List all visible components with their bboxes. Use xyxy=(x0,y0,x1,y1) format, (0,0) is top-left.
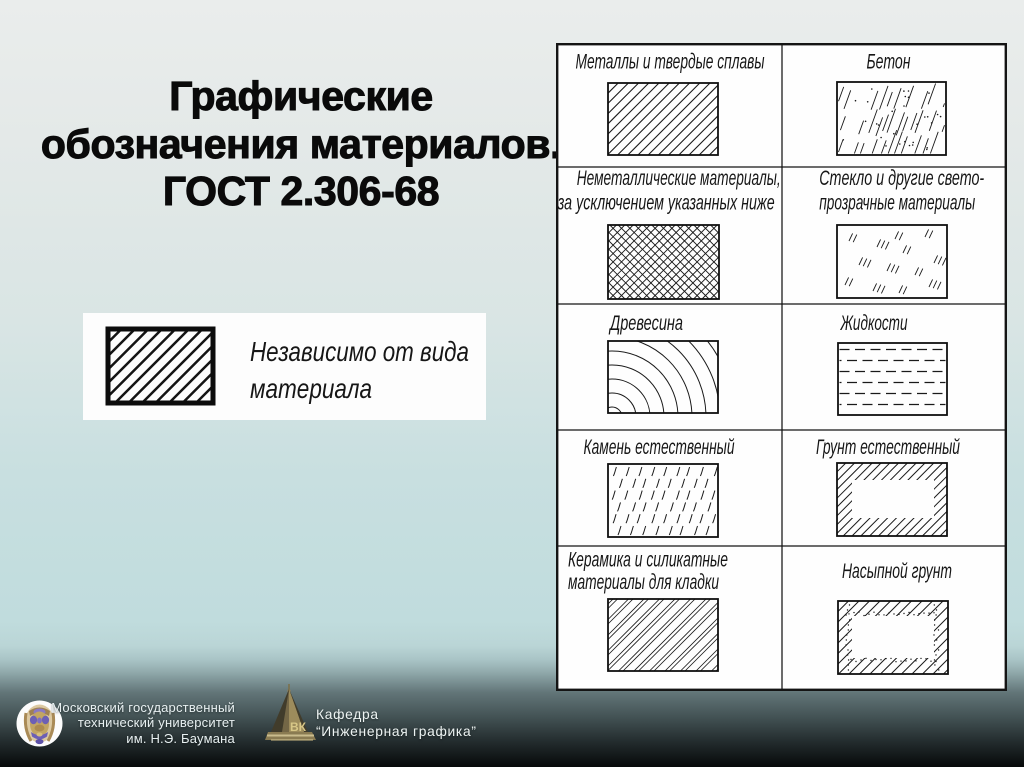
svg-text:ВК: ВК xyxy=(290,720,307,734)
svg-text:Металлы и твердые сплавы: Металлы и твердые сплавы xyxy=(576,51,765,74)
svg-text:Древесина: Древесина xyxy=(609,312,683,335)
svg-text:Стекло и другие свето-: Стекло и другие свето- xyxy=(819,167,984,190)
svg-text:Неметаллические материалы,: Неметаллические материалы, xyxy=(577,167,781,190)
svg-text:Керамика и силикатные: Керамика и силикатные xyxy=(568,549,728,572)
svg-text:Жидкости: Жидкости xyxy=(840,312,908,335)
svg-text:прозрачные материалы: прозрачные материалы xyxy=(819,192,975,215)
svg-text:материала: материала xyxy=(250,373,372,404)
svg-text:Независимо от вида: Независимо от вида xyxy=(250,336,469,367)
svg-text:Бетон: Бетон xyxy=(867,51,911,74)
svg-text:Грунт естественный: Грунт естественный xyxy=(816,436,960,459)
svg-text:материалы для кладки: материалы для кладки xyxy=(568,571,719,594)
svg-text:Насыпной грунт: Насыпной грунт xyxy=(842,560,952,583)
svg-text:за усключением указанных ниже: за усключением указанных ниже xyxy=(557,192,775,215)
svg-text:Камень естественный: Камень естественный xyxy=(584,436,735,459)
